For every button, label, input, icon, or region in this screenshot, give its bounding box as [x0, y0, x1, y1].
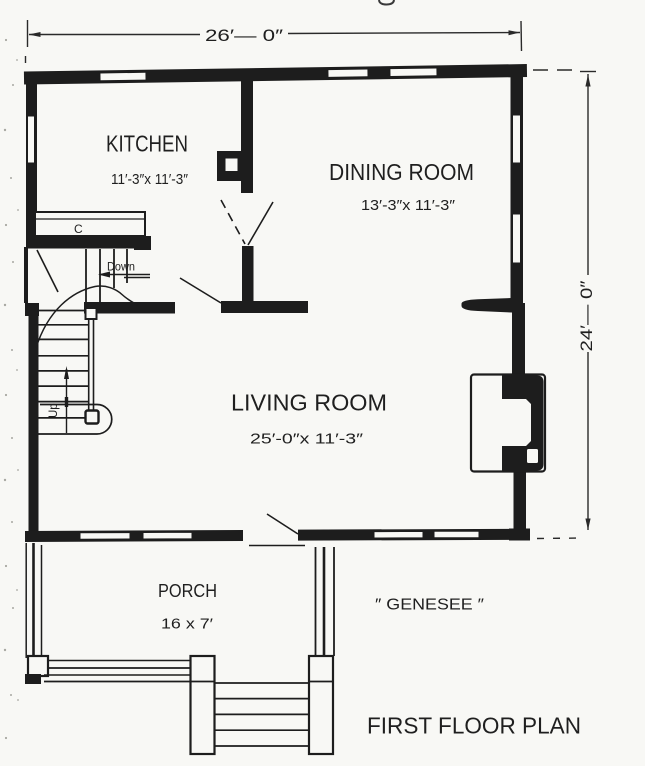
svg-text:16 x 7′: 16 x 7′: [161, 617, 213, 633]
svg-text:″ GENESEE ″: ″ GENESEE ″: [375, 597, 484, 614]
svg-text:PORCH: PORCH: [158, 581, 217, 601]
svg-text:LIVING ROOM: LIVING ROOM: [231, 390, 387, 416]
svg-text:Down: Down: [107, 260, 135, 274]
svg-text:KITCHEN: KITCHEN: [106, 131, 188, 157]
svg-text:Up: Up: [48, 403, 60, 418]
svg-text:11′-3″x 11′-3″: 11′-3″x 11′-3″: [111, 172, 188, 188]
svg-text:FIRST FLOOR PLAN: FIRST FLOOR PLAN: [367, 713, 581, 739]
svg-text:25′-0″x 11′-3″: 25′-0″x 11′-3″: [250, 432, 363, 448]
svg-text:DINING ROOM: DINING ROOM: [329, 159, 474, 185]
svg-text:C: C: [74, 222, 83, 236]
svg-text:26′— 0″: 26′— 0″: [205, 26, 283, 45]
svg-text:13′-3″x 11′-3″: 13′-3″x 11′-3″: [361, 198, 455, 214]
svg-text:24′— 0″: 24′— 0″: [577, 281, 596, 352]
